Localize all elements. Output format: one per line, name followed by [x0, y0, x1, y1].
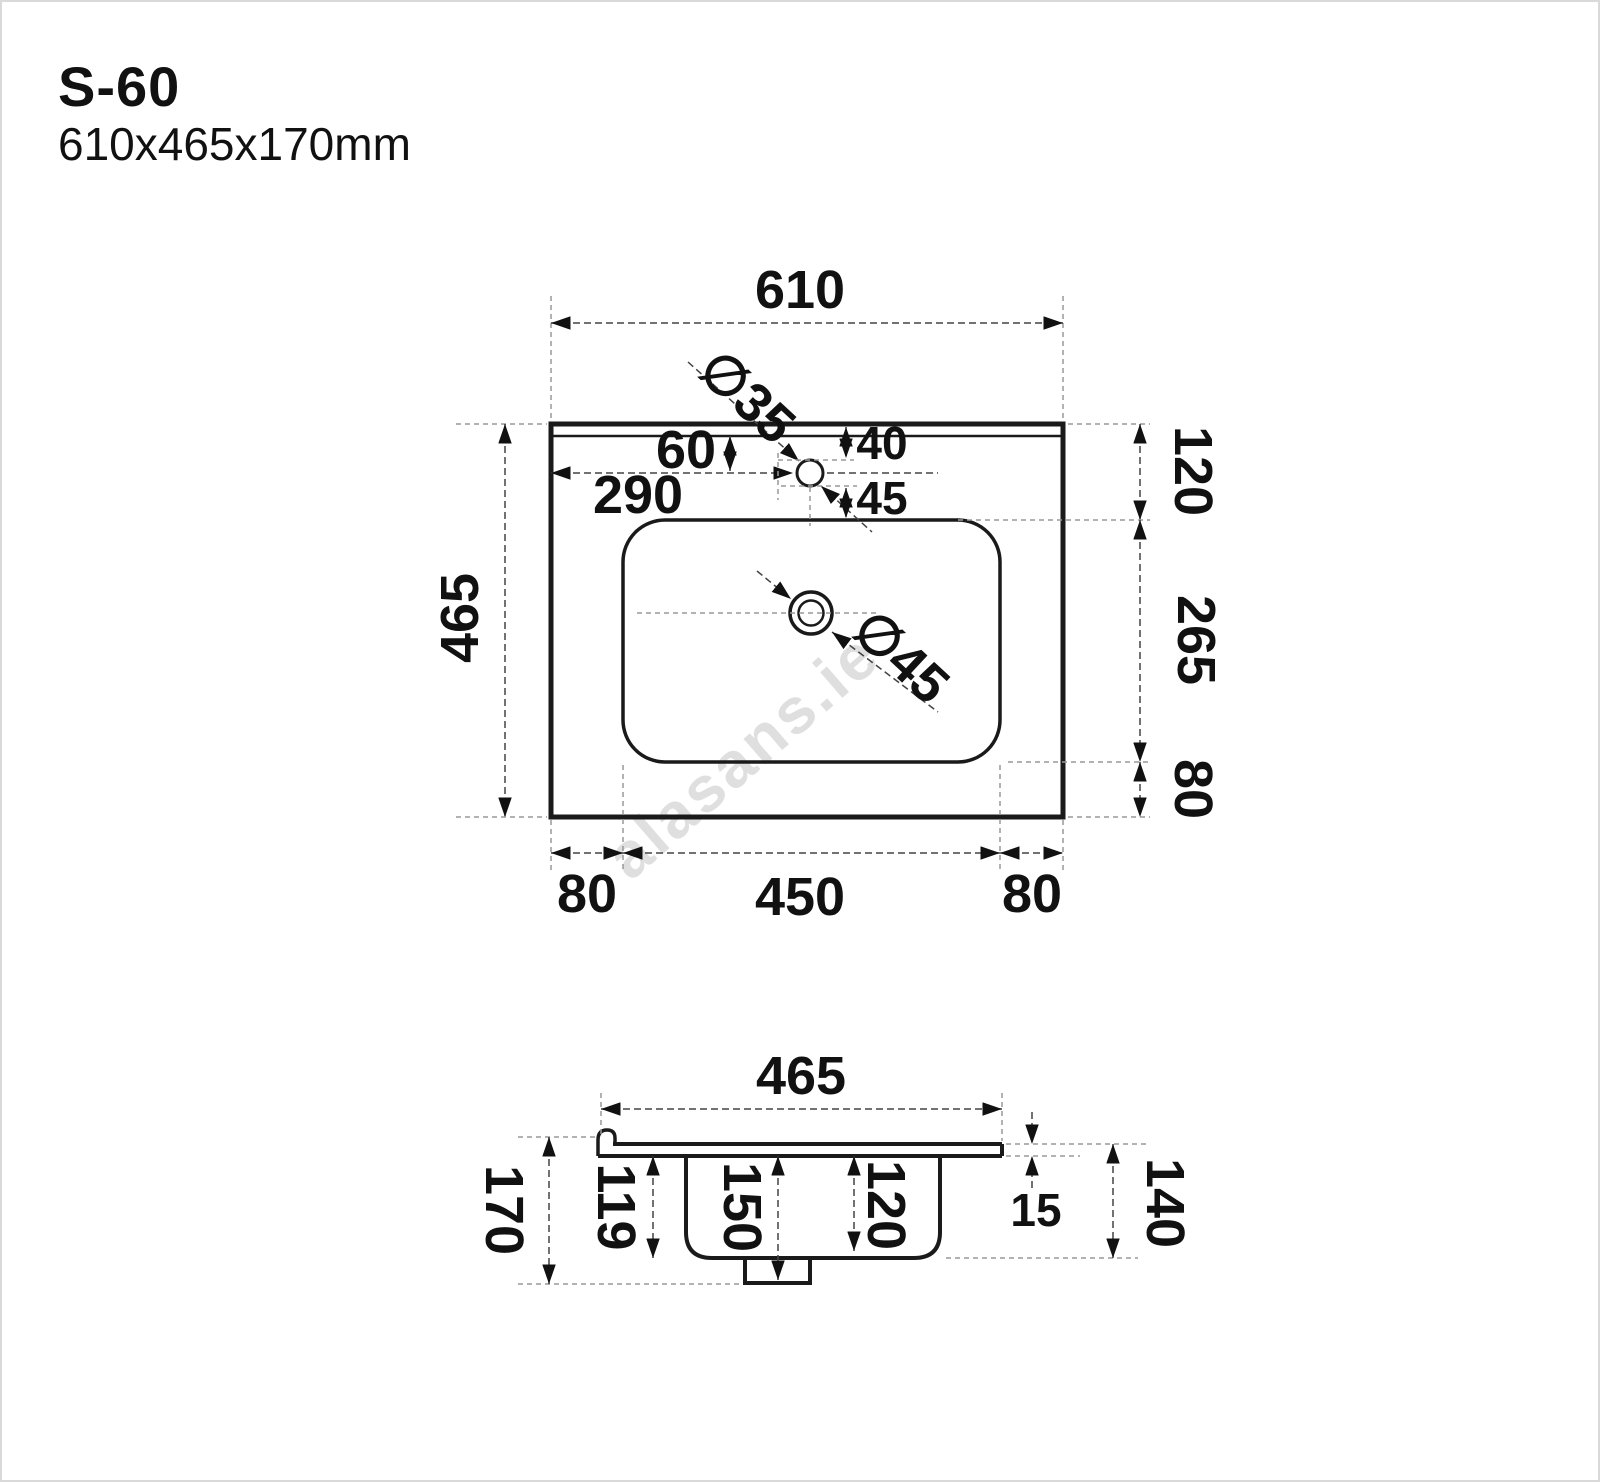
- dim-label-side-120: 120: [856, 1160, 916, 1250]
- dim-side-depth: 465: [601, 1046, 1002, 1141]
- dim-label-15: 15: [1010, 1184, 1061, 1236]
- model-size: 610x465x170mm: [58, 118, 411, 170]
- dim-label-40: 40: [856, 417, 907, 469]
- dim-label-150: 150: [712, 1162, 772, 1252]
- dim-label-140: 140: [1135, 1158, 1195, 1248]
- side-view: 465 170 119 150 120: [474, 1046, 1195, 1284]
- dim-label-265: 265: [1166, 595, 1226, 685]
- dim-label-side-465: 465: [756, 1046, 846, 1106]
- dim-label-45: 45: [856, 472, 907, 524]
- dim-label-610: 610: [755, 260, 845, 320]
- dim-label-120-back: 120: [1163, 426, 1223, 516]
- technical-drawing: S-60 610x465x170mm alasans.ie 610 465: [0, 0, 1600, 1482]
- dim-label-80-left: 80: [557, 864, 617, 924]
- top-view: 610 465 ∅35 60 290: [430, 260, 1226, 927]
- dim-label-119: 119: [586, 1163, 646, 1250]
- dim-overall-depth: 465: [430, 424, 547, 817]
- dim-label-290: 290: [593, 465, 683, 525]
- dim-overall-width: 610: [551, 260, 1063, 420]
- faucet-hole: [797, 460, 823, 486]
- watermark-text: alasans.ie: [592, 618, 893, 893]
- dim-bowl-inner-height: 119: [586, 1156, 653, 1258]
- dim-rim-thickness: 15: [1006, 1112, 1150, 1236]
- dim-label-465: 465: [430, 573, 490, 663]
- model-title: S-60: [58, 55, 180, 118]
- dim-label-170: 170: [474, 1165, 534, 1255]
- dim-label-450: 450: [755, 867, 845, 927]
- dim-right-column: 120 265 80: [958, 424, 1226, 819]
- dim-bowl-mid-height: 120: [854, 1156, 916, 1251]
- dim-label-80-right: 80: [1002, 864, 1062, 924]
- dim-label-80-front: 80: [1163, 759, 1223, 819]
- dim-bowl-height: 140: [946, 1144, 1195, 1258]
- spec-sheet: S-60 610x465x170mm alasans.ie 610 465: [0, 0, 1600, 1482]
